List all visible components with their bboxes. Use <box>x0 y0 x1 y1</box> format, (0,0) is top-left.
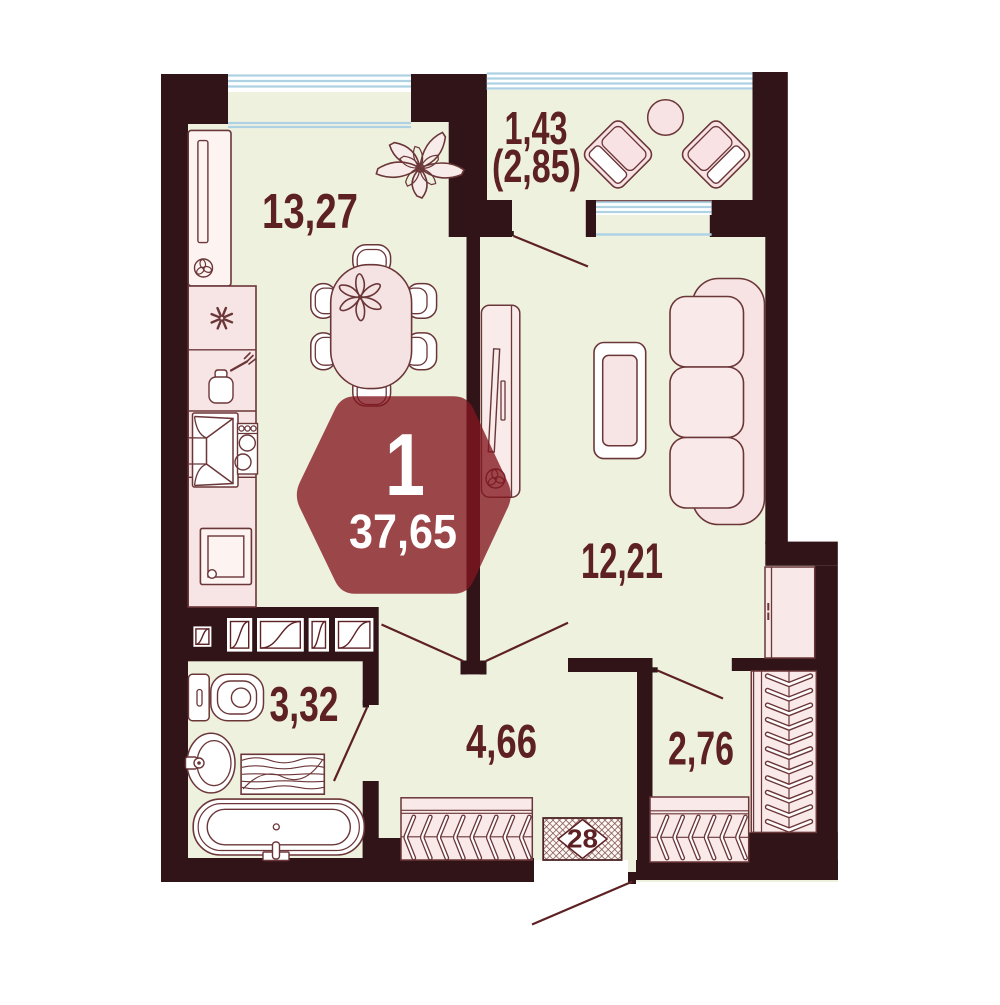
svg-text:13,27: 13,27 <box>262 185 358 239</box>
svg-text:28: 28 <box>567 824 598 854</box>
svg-text:4,66: 4,66 <box>466 715 537 768</box>
svg-text:(2,85): (2,85) <box>492 140 581 192</box>
svg-text:3,32: 3,32 <box>270 678 339 732</box>
svg-text:12,21: 12,21 <box>581 533 663 589</box>
svg-text:37,65: 37,65 <box>349 506 457 559</box>
svg-text:2,76: 2,76 <box>668 722 734 775</box>
svg-text:1: 1 <box>385 415 425 514</box>
